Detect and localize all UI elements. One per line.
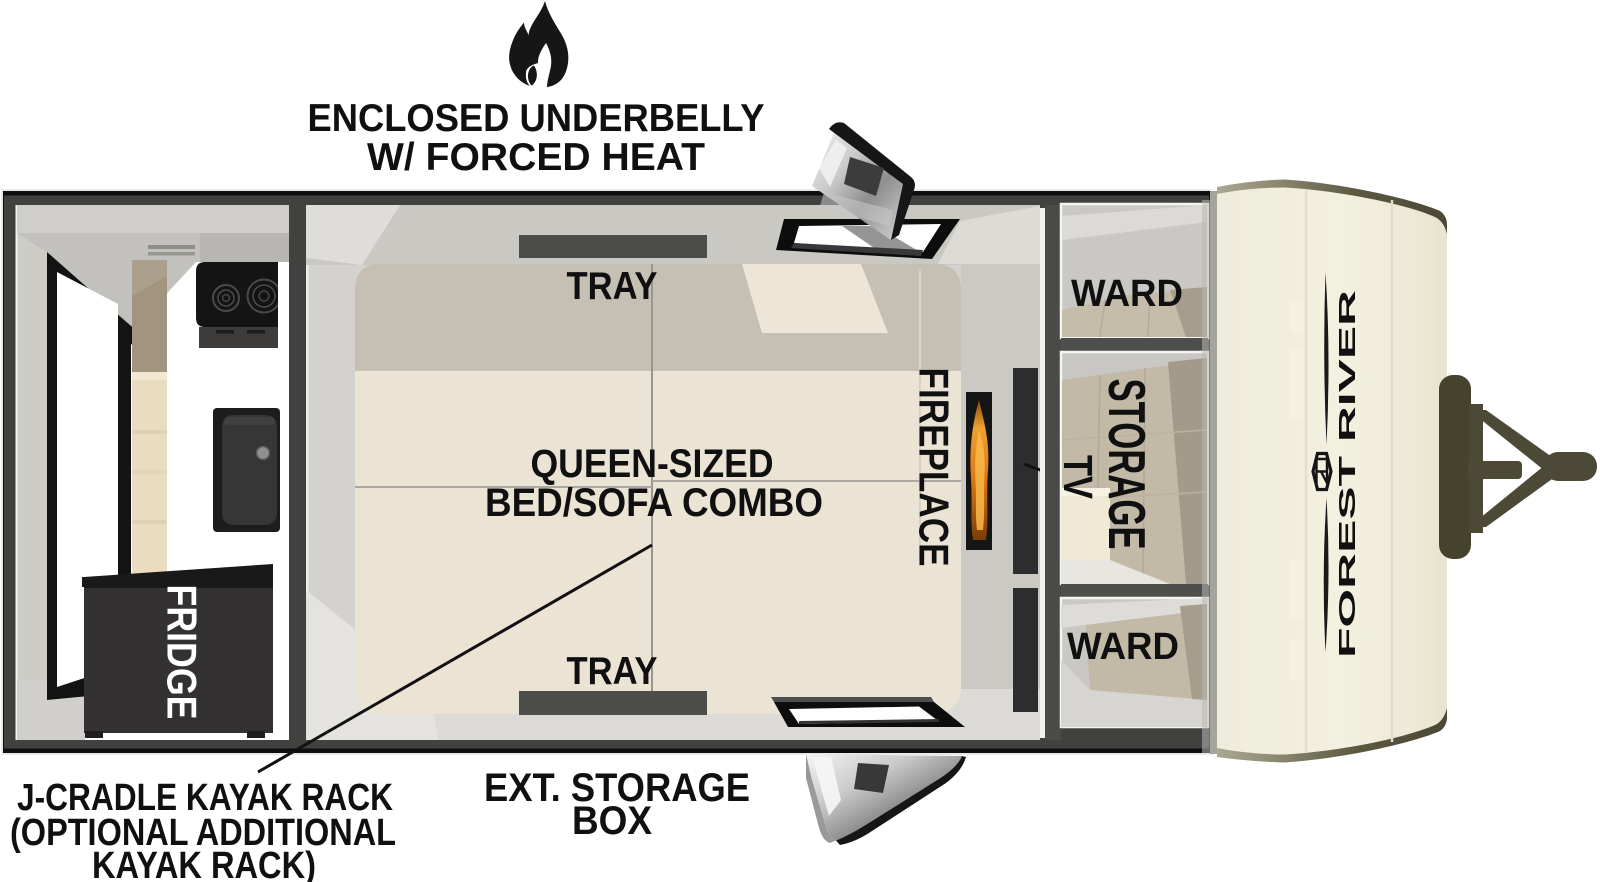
svg-text:BED/SOFA COMBO: BED/SOFA COMBO [485,481,823,525]
svg-text:KAYAK RACK): KAYAK RACK) [92,845,316,882]
svg-text:FOREST RIVER: FOREST RIVER [1334,290,1360,658]
svg-text:WARD: WARD [1071,273,1183,315]
svg-text:BOX: BOX [572,799,652,843]
svg-text:QUEEN-SIZED: QUEEN-SIZED [531,442,774,486]
svg-text:TRAY: TRAY [567,650,658,693]
svg-text:FRIDGE: FRIDGE [159,585,206,720]
svg-text:TV: TV [1055,455,1101,500]
svg-text:ENCLOSED UNDERBELLY: ENCLOSED UNDERBELLY [308,97,765,140]
svg-text:W/ FORCED HEAT: W/ FORCED HEAT [367,136,705,179]
svg-text:WARD: WARD [1067,626,1179,668]
svg-text:TRAY: TRAY [567,265,658,308]
svg-text:STORAGE: STORAGE [1097,379,1155,550]
svg-text:FIREPLACE: FIREPLACE [911,368,958,567]
